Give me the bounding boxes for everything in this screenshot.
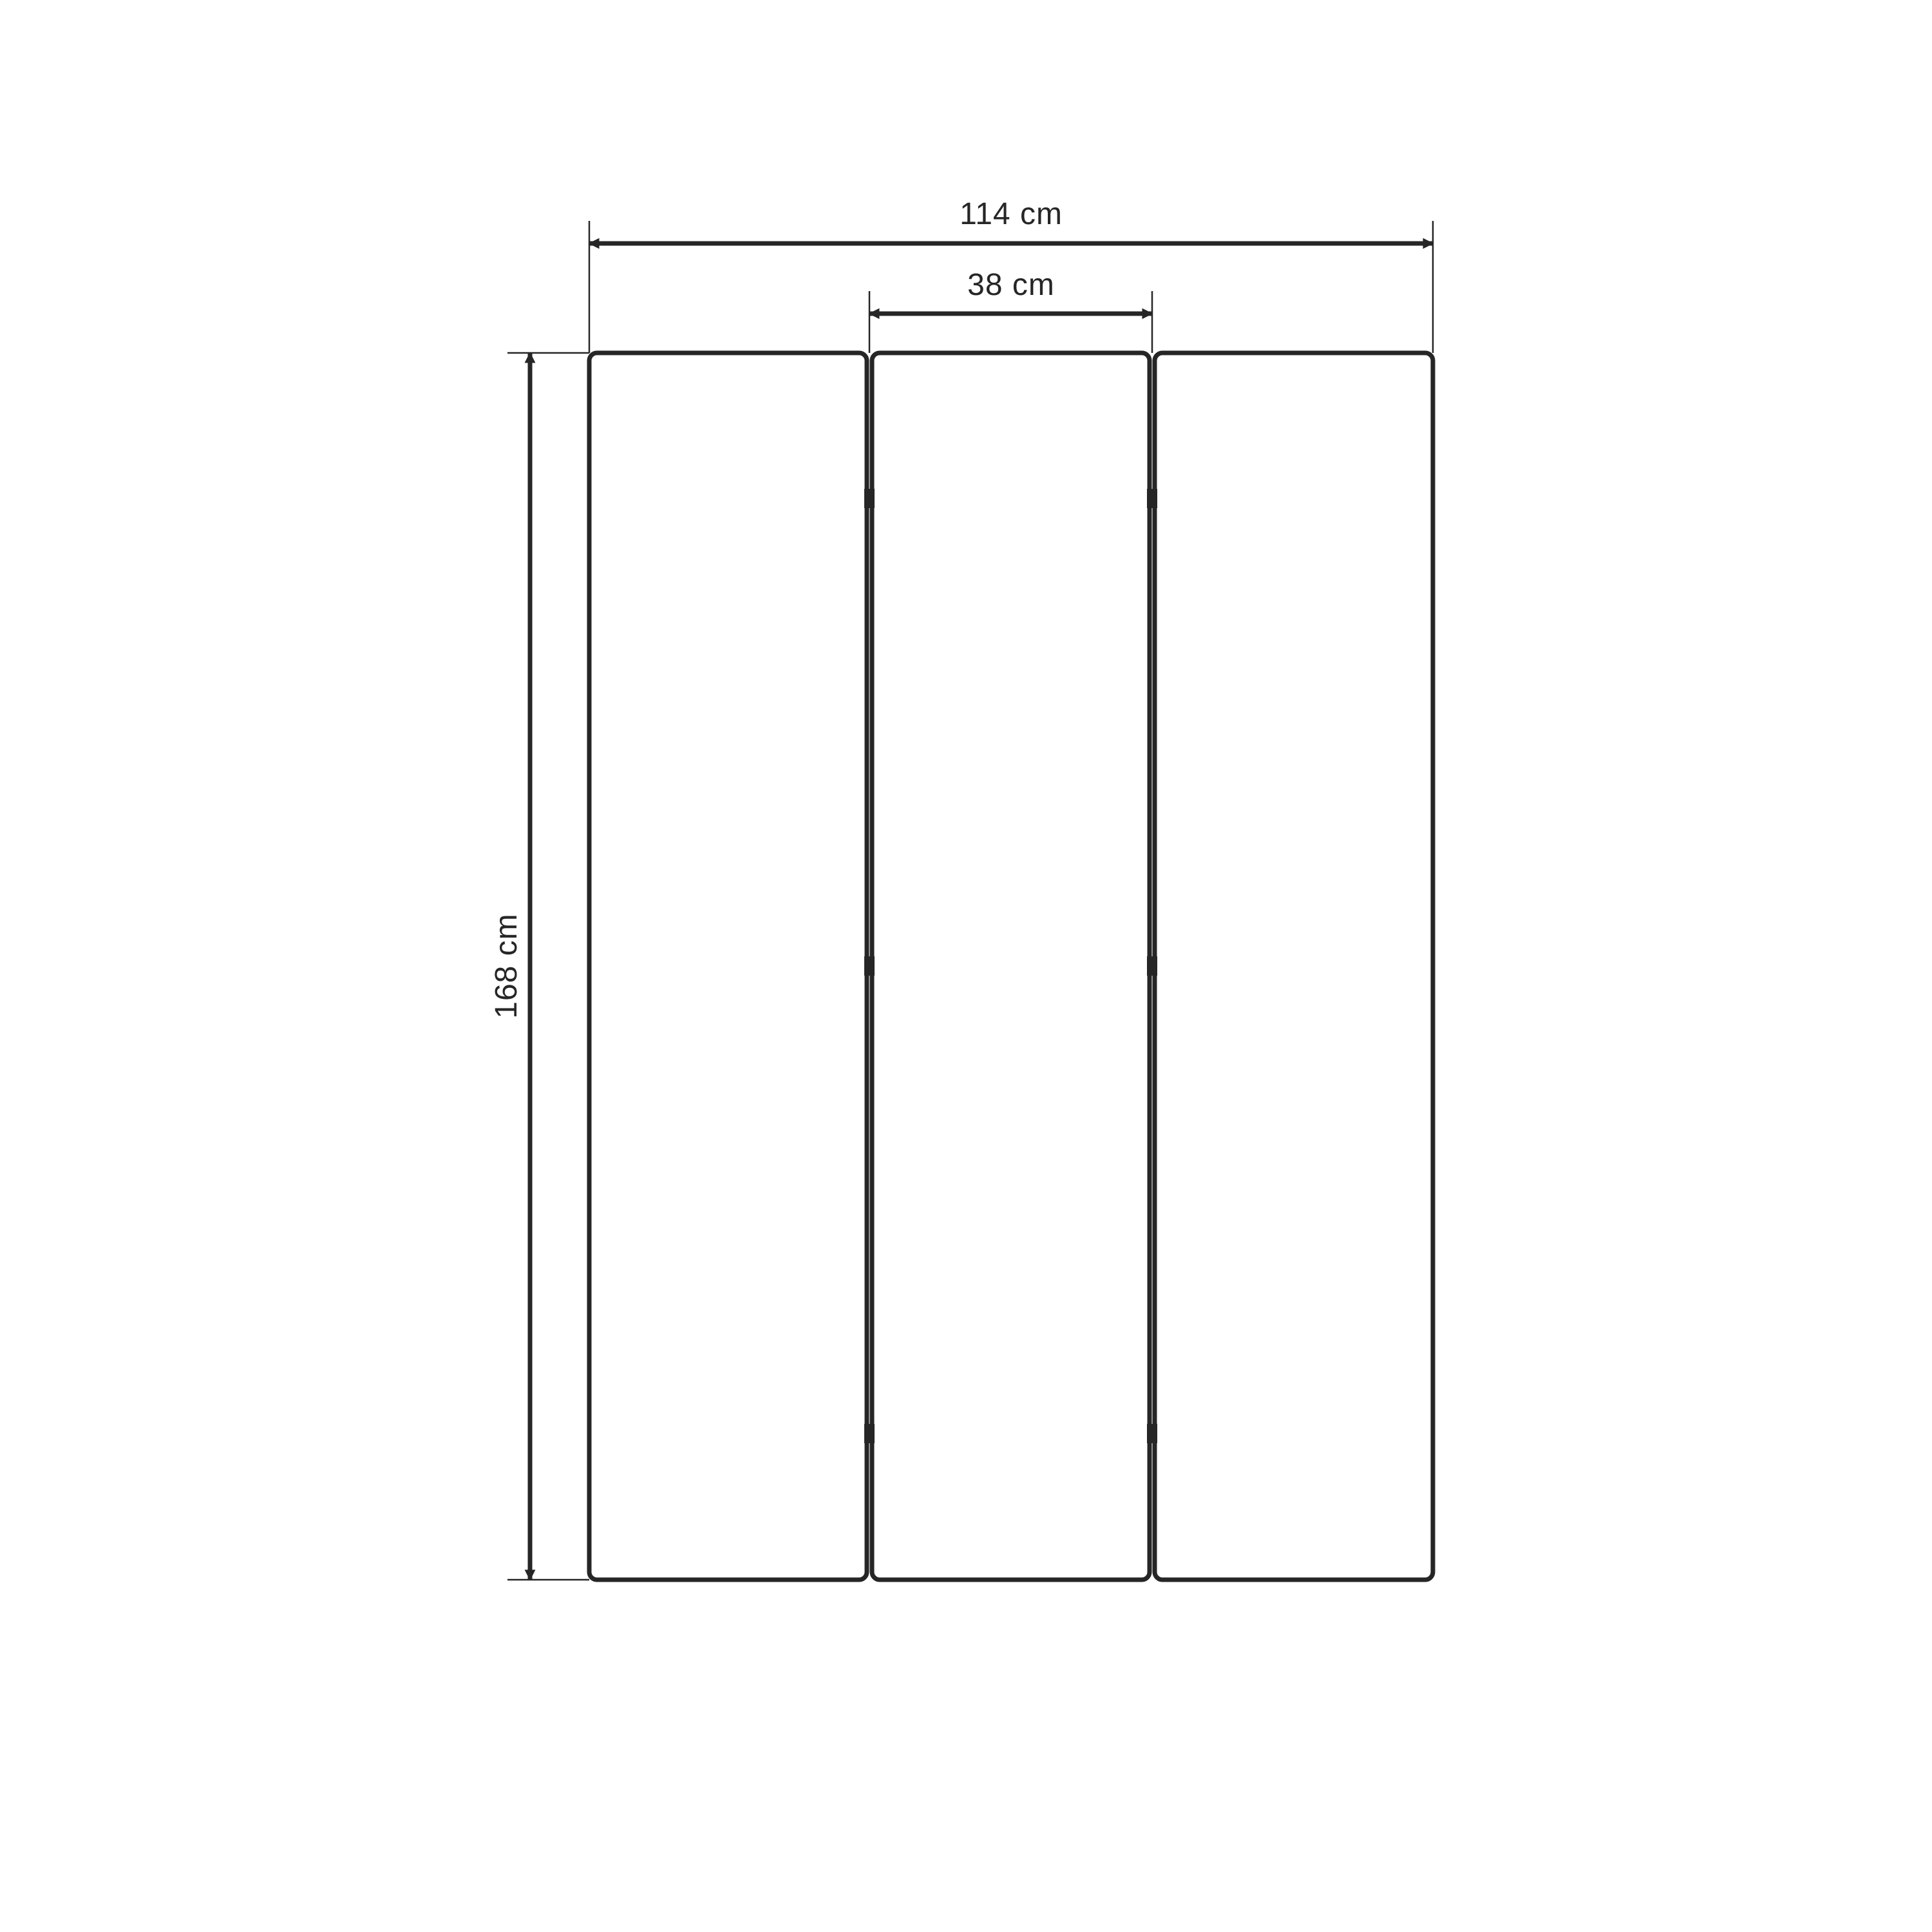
hinge-left-middle <box>864 956 875 976</box>
hinge-right-middle <box>1147 956 1157 976</box>
panel-width-label: 38 cm <box>967 268 1055 302</box>
panel-width-dimension: 38 cm <box>869 268 1152 353</box>
height-dimension: 168 cm <box>489 353 589 1580</box>
panels <box>589 353 1433 1580</box>
hinge-left-top <box>864 489 875 508</box>
dimension-drawing: 114 cm 38 cm 168 cm <box>0 0 1932 1932</box>
height-label: 168 cm <box>489 913 524 1018</box>
panel-left <box>589 353 867 1580</box>
panel-middle <box>872 353 1150 1580</box>
panel-right <box>1155 353 1433 1580</box>
hinge-left-bottom <box>864 1424 875 1443</box>
hinge-right-bottom <box>1147 1424 1157 1443</box>
hinge-right-top <box>1147 489 1157 508</box>
total-width-label: 114 cm <box>960 197 1063 231</box>
